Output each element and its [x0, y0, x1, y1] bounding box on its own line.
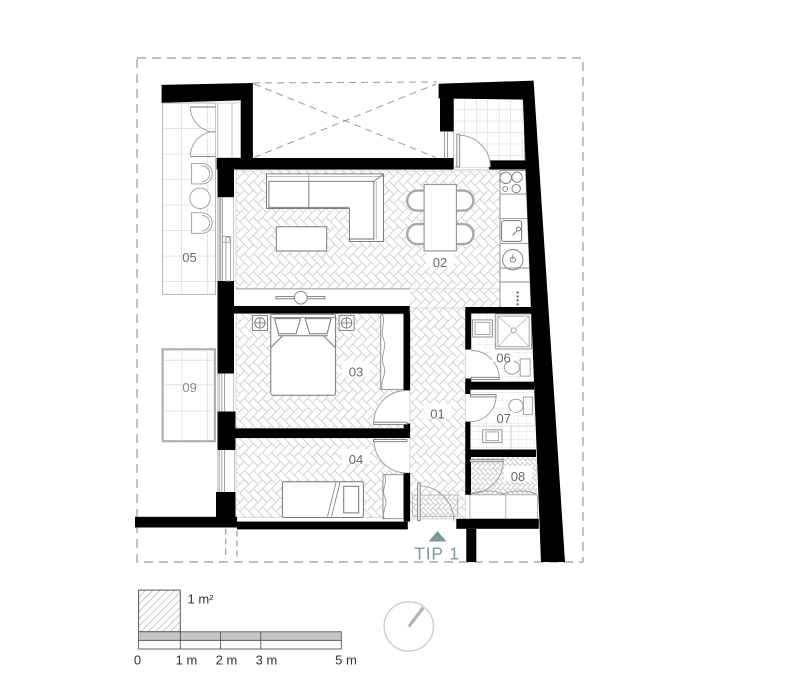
svg-text:1 m: 1 m: [176, 653, 198, 668]
svg-text:01: 01: [430, 407, 444, 422]
svg-text:0: 0: [134, 653, 141, 668]
svg-text:07: 07: [496, 411, 510, 426]
svg-text:5 m: 5 m: [335, 653, 357, 668]
svg-text:06: 06: [496, 351, 510, 366]
svg-text:1 m²: 1 m²: [188, 592, 215, 607]
svg-text:09: 09: [182, 380, 196, 395]
svg-text:TIP 1: TIP 1: [414, 544, 460, 564]
svg-text:08: 08: [511, 469, 525, 484]
svg-text:03: 03: [349, 365, 363, 380]
svg-text:2 m: 2 m: [216, 653, 238, 668]
svg-text:02: 02: [433, 255, 447, 270]
svg-text:3 m: 3 m: [256, 653, 278, 668]
svg-text:05: 05: [182, 250, 196, 265]
svg-text:04: 04: [349, 452, 363, 467]
